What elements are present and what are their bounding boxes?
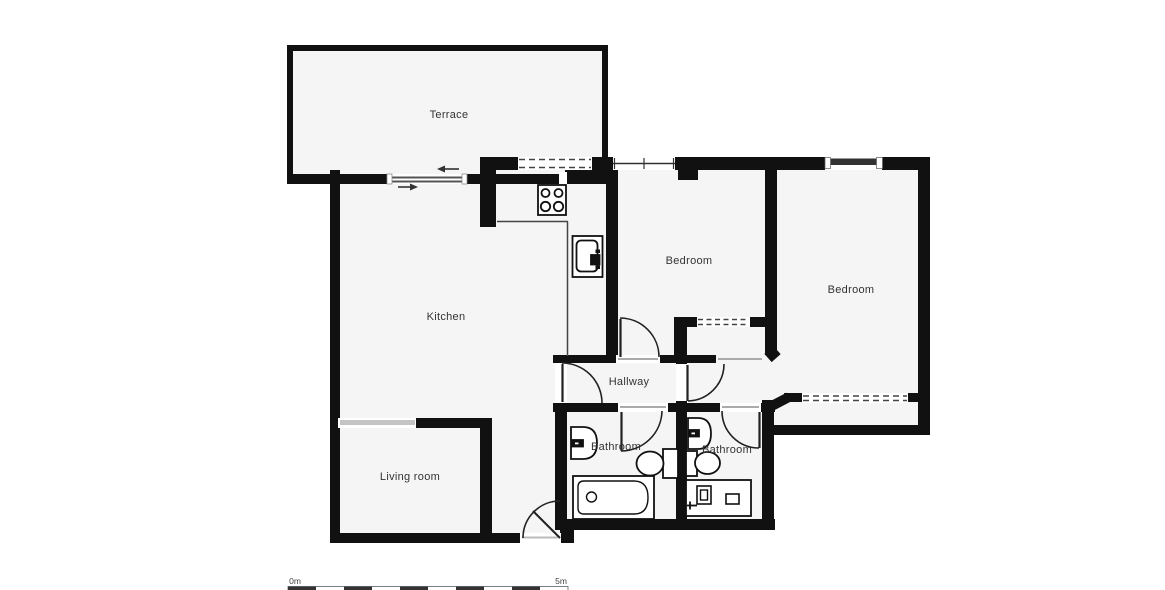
room-label-kitchen: Kitchen bbox=[427, 311, 466, 323]
room-label-terrace: Terrace bbox=[430, 109, 469, 121]
stove-icon bbox=[538, 185, 566, 215]
kitchen-sink-icon bbox=[573, 236, 603, 277]
floor-plan-drawing bbox=[0, 0, 1165, 590]
room-label-bedroom-2: Bedroom bbox=[828, 284, 875, 296]
shower-unit-icon bbox=[686, 480, 751, 516]
dashed-window-bedroom2 bbox=[802, 393, 908, 403]
toilet-icon bbox=[637, 449, 679, 478]
bathtub-icon bbox=[573, 476, 654, 519]
vestibule-floor bbox=[676, 317, 777, 412]
room-label-bedroom-1: Bedroom bbox=[666, 255, 713, 267]
bedroom2-floor bbox=[771, 163, 924, 433]
window-bedroom2-top bbox=[825, 157, 883, 170]
room-label-bathroom-1: Bathroom bbox=[591, 441, 641, 453]
dashed-window-kitchen bbox=[518, 157, 592, 170]
dashed-window-closet bbox=[697, 317, 750, 327]
scale-start-label: 0m bbox=[289, 576, 301, 586]
window-bedroom1-top bbox=[613, 157, 675, 170]
scale-end-label: 5m bbox=[555, 576, 567, 586]
scale-ruler bbox=[288, 587, 568, 590]
room-label-hallway: Hallway bbox=[609, 376, 650, 388]
room-label-living-room: Living room bbox=[380, 471, 440, 483]
room-label-bathroom-2: Bathroom bbox=[702, 444, 752, 456]
glass-partition bbox=[340, 420, 415, 425]
floor-plan: Terrace Kitchen Bedroom Bedroom Hallway … bbox=[0, 0, 1165, 590]
